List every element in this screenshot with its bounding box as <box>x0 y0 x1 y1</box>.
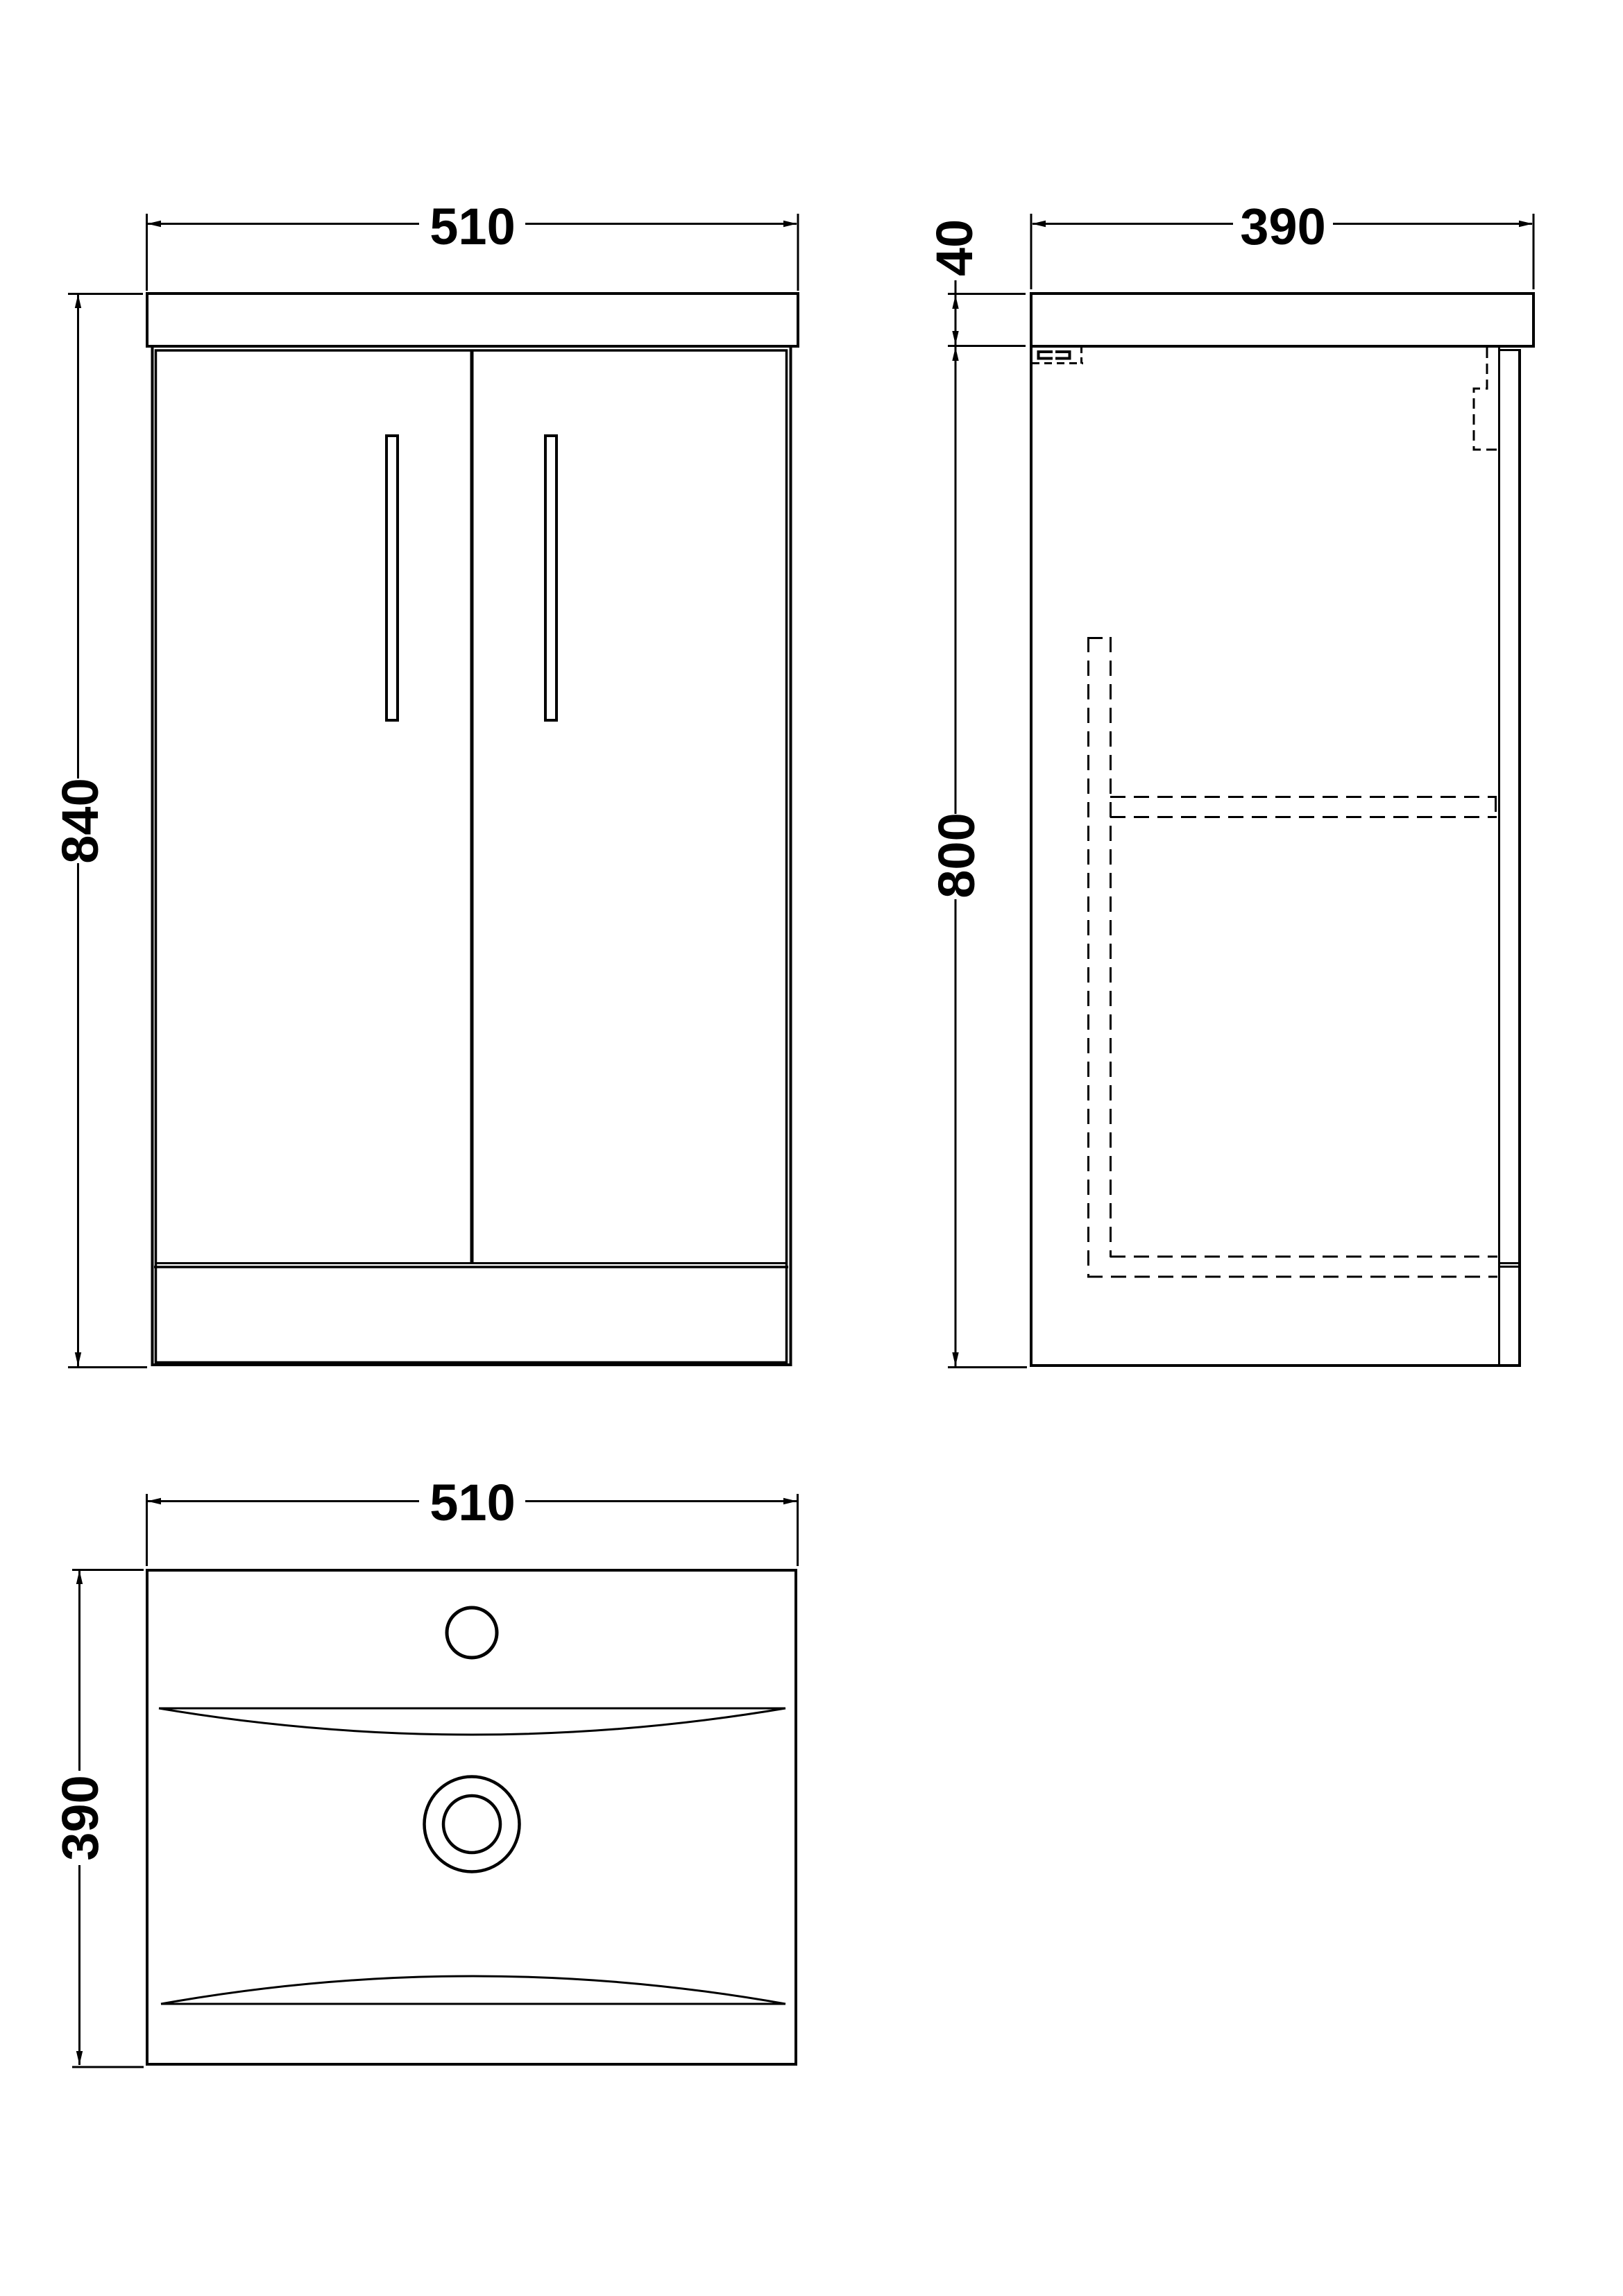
svg-text:800: 800 <box>928 813 985 898</box>
svg-text:390: 390 <box>1240 198 1325 255</box>
svg-text:510: 510 <box>430 1474 515 1531</box>
svg-text:510: 510 <box>430 198 515 255</box>
svg-text:390: 390 <box>51 1775 109 1860</box>
svg-text:40: 40 <box>926 219 983 276</box>
svg-text:840: 840 <box>51 778 109 863</box>
